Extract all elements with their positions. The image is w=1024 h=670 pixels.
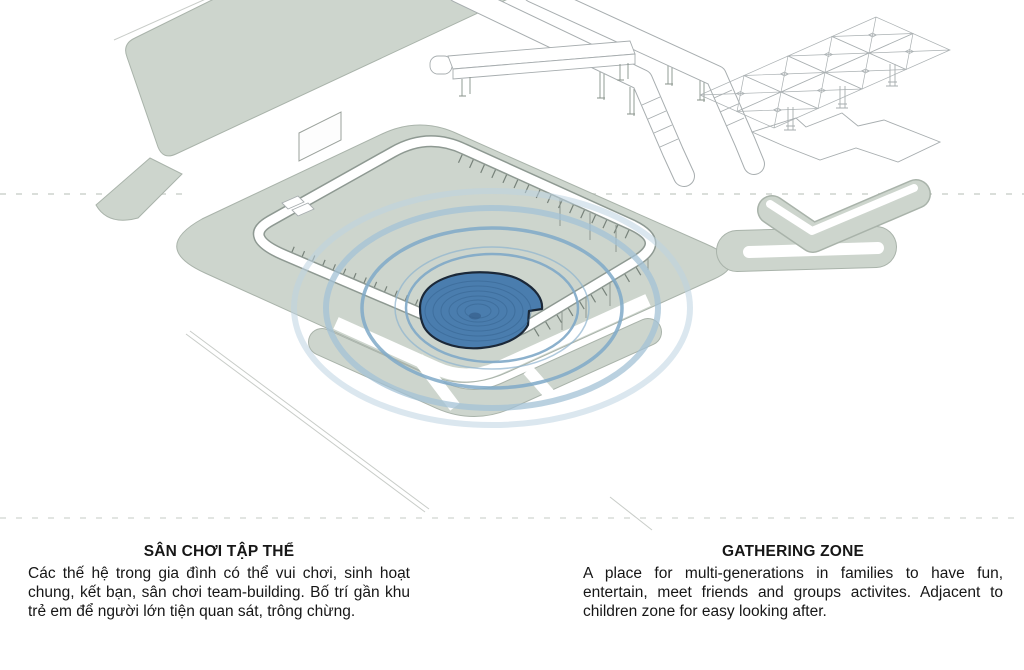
caption-english: GATHERING ZONE A place for multi-generat… xyxy=(583,543,1003,621)
plaza-outline xyxy=(752,113,940,162)
caption-en-title: GATHERING ZONE xyxy=(583,543,1003,561)
diagram-page: SÂN CHƠI TẬP THỂ Các thế hệ trong gia đì… xyxy=(0,0,1024,670)
caption-en-body: A place for multi-generations in familie… xyxy=(583,564,1003,621)
caption-vietnamese: SÂN CHƠI TẬP THỂ Các thế hệ trong gia đì… xyxy=(28,543,410,621)
path-check-piece xyxy=(770,188,916,238)
caption-vi-body: Các thế hệ trong gia đình có thể vui chơ… xyxy=(28,564,410,621)
billboard-panel xyxy=(299,112,341,161)
caption-vi-title: SÂN CHƠI TẬP THỂ xyxy=(28,543,410,561)
canopy-grid xyxy=(700,17,950,128)
amphitheater-center xyxy=(469,313,481,320)
